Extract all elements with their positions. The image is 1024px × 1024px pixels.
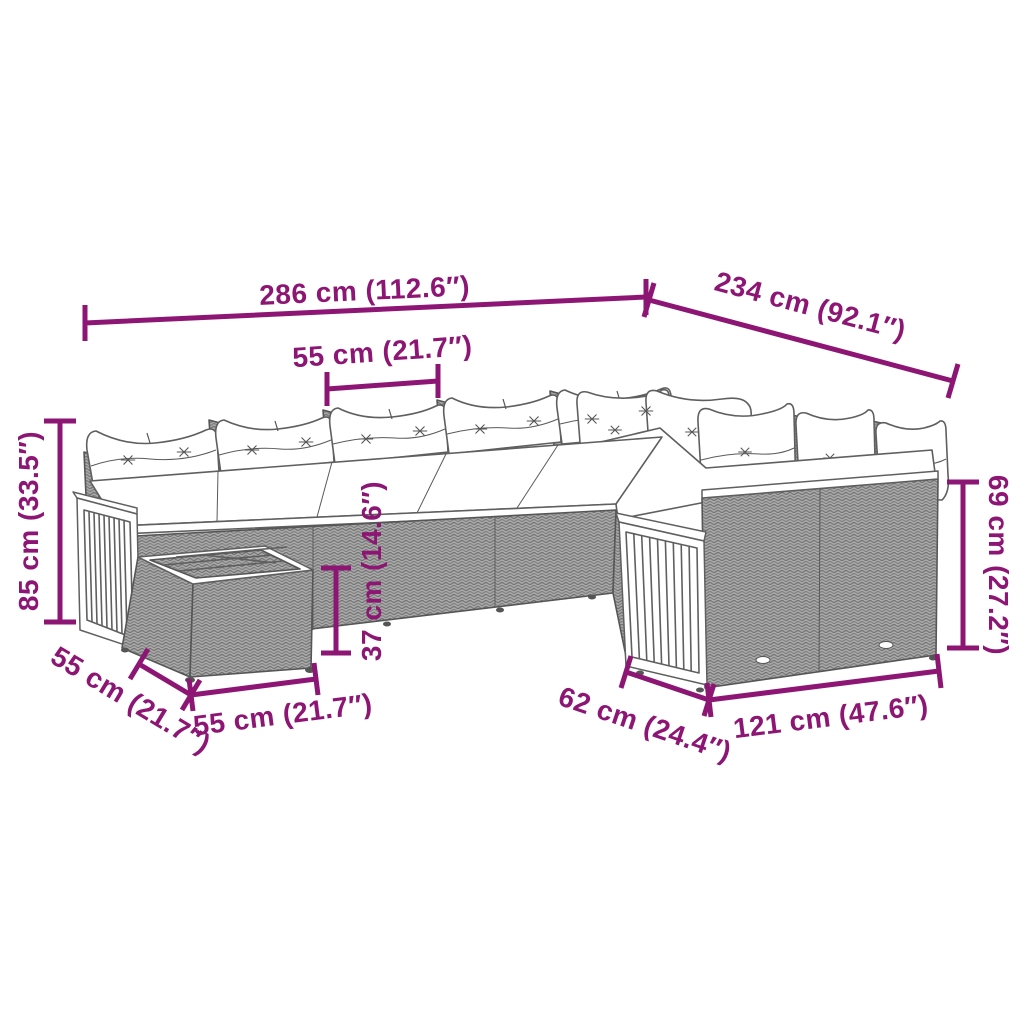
dim-seat-width: 55 cm (21.7″): [291, 330, 473, 406]
wing-back-wall: [702, 471, 938, 688]
dim-height-left: 85 cm (33.5″): [13, 421, 76, 622]
dim-overall-depth: 234 cm (92.1″): [644, 266, 958, 398]
dim-height-left-label: 85 cm (33.5″): [13, 431, 44, 611]
dim-table-width-label: 55 cm (21.7″): [191, 688, 374, 742]
dim-seat-width-label: 55 cm (21.7″): [291, 330, 473, 373]
dim-wing-width-label: 121 cm (47.6″): [731, 689, 930, 744]
diagram-canvas: 286 cm (112.6″) 234 cm (92.1″) 55 cm (21…: [0, 0, 1024, 1024]
dim-overall-depth-label: 234 cm (92.1″): [712, 266, 910, 346]
side-table: [121, 546, 315, 683]
dim-table-height-label: 37 cm (14.6″): [356, 481, 387, 661]
dimension-diagram: 286 cm (112.6″) 234 cm (92.1″) 55 cm (21…: [0, 0, 1024, 1024]
sofa-illustration: [73, 388, 948, 693]
dim-height-right-label: 69 cm (27.2″): [983, 475, 1014, 655]
dim-height-right: 69 cm (27.2″): [947, 475, 1014, 655]
dim-overall-width: 286 cm (112.6″): [85, 270, 646, 341]
